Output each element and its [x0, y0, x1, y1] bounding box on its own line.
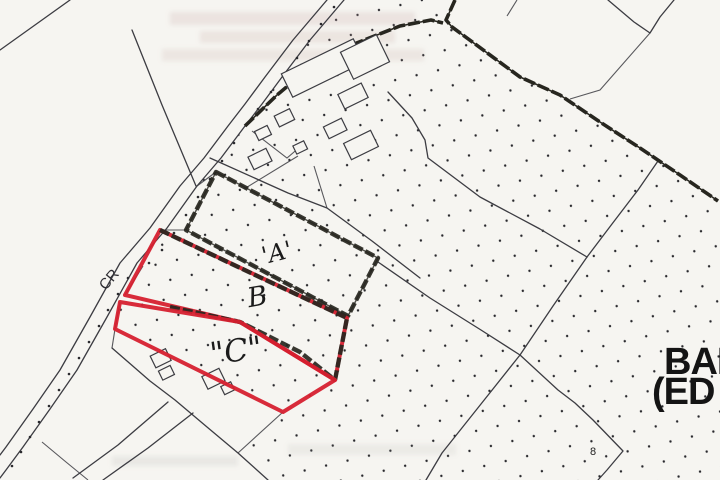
place-name-line2: (ED	[652, 371, 714, 413]
parcel-number: 8	[590, 446, 596, 458]
site-plan-scan: CR	[0, 0, 720, 480]
plot-c-label: "C"	[208, 330, 265, 373]
site-plan-map: CR	[0, 0, 720, 480]
